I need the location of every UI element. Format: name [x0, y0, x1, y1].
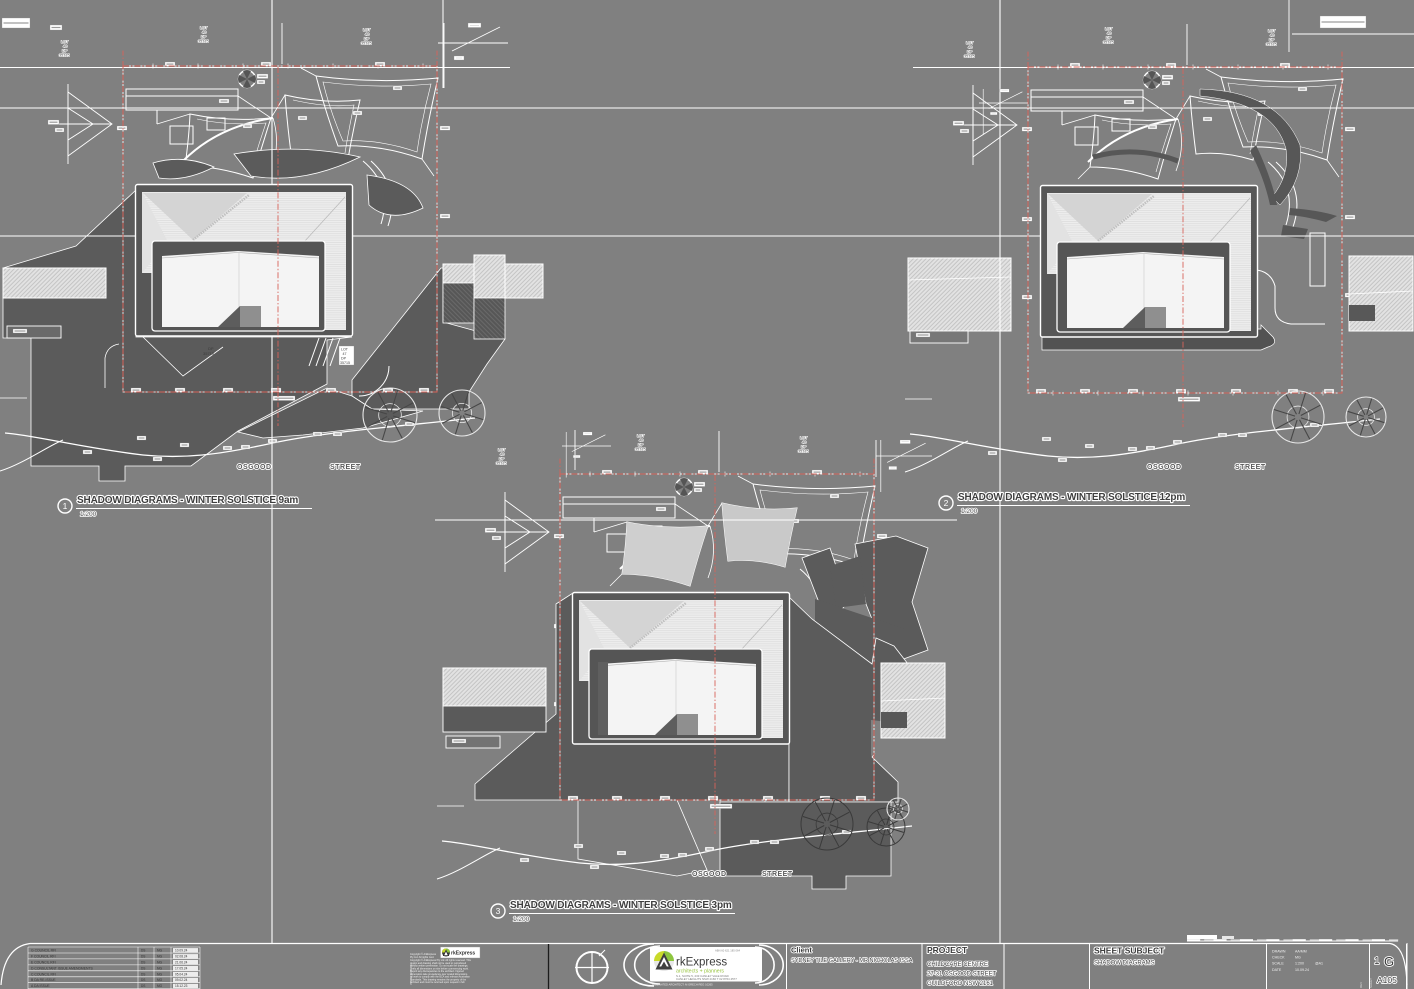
svg-text:SHADOW DIAGRAMS - WINTER SOLST: SHADOW DIAGRAMS - WINTER SOLSTICE 12pm — [958, 492, 1185, 503]
svg-text:A105: A105 — [1377, 975, 1397, 985]
svg-text:1: 1 — [63, 501, 68, 511]
svg-text:STREET: STREET — [1235, 464, 1266, 471]
svg-text:10.09.24: 10.09.24 — [175, 949, 188, 953]
svg-text:SHADOW DIAGRAMS - WINTER SOLST: SHADOW DIAGRAMS - WINTER SOLSTICE 3pm — [510, 900, 732, 911]
svg-text:B DA RE-ISSUE: B DA RE-ISSUE — [31, 978, 56, 982]
svg-text:MG: MG — [157, 960, 163, 964]
svg-text:DS: DS — [141, 972, 145, 976]
svg-text:DS: DS — [141, 966, 145, 970]
svg-text:09.02.24: 09.02.24 — [175, 978, 188, 982]
svg-text:D CONSULTANT ISSUE AMENDMENTS: D CONSULTANT ISSUE AMENDMENTS — [31, 966, 94, 970]
svg-text:SHADOW DIAGRAMS: SHADOW DIAGRAMS — [1094, 961, 1155, 967]
svg-text:17.05.24: 17.05.24 — [175, 966, 188, 970]
svg-text:1:200: 1:200 — [80, 511, 97, 518]
svg-text:REV: REV — [1359, 982, 1363, 988]
svg-text:G COUNCIL RFI: G COUNCIL RFI — [31, 949, 56, 953]
svg-text:15.12.23: 15.12.23 — [175, 984, 188, 988]
svg-text:OSGOOD: OSGOOD — [692, 871, 727, 878]
svg-text:C COUNCIL RFI: C COUNCIL RFI — [31, 972, 56, 976]
svg-text:architect and must be returned: architect and must be returned upon requ… — [410, 981, 465, 984]
svg-text:A DA ISSUE: A DA ISSUE — [31, 984, 50, 988]
svg-text:DP: DP — [341, 357, 347, 361]
svg-text:DATE: DATE — [1272, 968, 1282, 972]
svg-text:NOMINATED ARCHITECT: M GRECH R: NOMINATED ARCHITECT: M GRECH REG 10265 — [652, 983, 713, 987]
svg-text:SHEET: SHEET — [1369, 978, 1373, 988]
svg-text:DS: DS — [141, 949, 145, 953]
svg-text:G: G — [1384, 954, 1394, 969]
svg-text:OSGOOD: OSGOOD — [1147, 464, 1182, 471]
svg-text:SHADOW DIAGRAMS - WINTER SOLST: SHADOW DIAGRAMS - WINTER SOLSTICE 9am — [77, 495, 298, 506]
svg-text:CANLEY HEIGHTS NSW 2166 T 02: CANLEY HEIGHTS NSW 2166 T 02 8764 4577 — [676, 977, 737, 981]
svg-text:E COUNCIL RFI: E COUNCIL RFI — [31, 960, 56, 964]
svg-text:MG: MG — [157, 966, 163, 970]
svg-text:SHEET SUBJECT: SHEET SUBJECT — [1094, 946, 1165, 956]
svg-text:SYDNEY TILE GALLERY - MR NICHO: SYDNEY TILE GALLERY - MR NICHOLAS ISSA — [791, 958, 913, 964]
svg-text:3: 3 — [496, 906, 501, 916]
svg-text:MG: MG — [157, 984, 163, 988]
svg-text:CHILDCARE CENTRE: CHILDCARE CENTRE — [927, 962, 988, 968]
svg-text:ABN 60 621 185 064: ABN 60 621 185 064 — [715, 949, 740, 953]
svg-text:35715: 35715 — [203, 351, 215, 356]
svg-text:47: 47 — [343, 352, 347, 356]
svg-text:MG: MG — [157, 978, 163, 982]
svg-text:F COUNCIL RFI: F COUNCIL RFI — [31, 955, 56, 959]
svg-text:05.04.24: 05.04.24 — [175, 972, 188, 976]
svg-text:MG: MG — [1295, 956, 1301, 960]
svg-text:1:200: 1:200 — [513, 916, 530, 923]
svg-text:2: 2 — [944, 498, 949, 508]
svg-text:MG: MG — [157, 949, 163, 953]
svg-text:AA/MM: AA/MM — [1295, 950, 1307, 954]
svg-text:27-31 OSGOOD STREET: 27-31 OSGOOD STREET — [927, 972, 997, 978]
svg-text:CHECK: CHECK — [1272, 956, 1285, 960]
svg-text:DS: DS — [141, 955, 145, 959]
svg-text:GUILDFORD NSW 2161: GUILDFORD NSW 2161 — [927, 981, 994, 987]
svg-text:@A1: @A1 — [1315, 962, 1323, 966]
svg-text:DS: DS — [141, 984, 145, 988]
svg-text:1: 1 — [1374, 956, 1380, 967]
svg-text:SCALE: SCALE — [1272, 962, 1284, 966]
svg-text:STREET: STREET — [762, 871, 793, 878]
svg-text:Client: Client — [791, 946, 812, 955]
svg-text:STREET: STREET — [330, 464, 361, 471]
svg-text:DS: DS — [141, 978, 145, 982]
svg-text:02.08.24: 02.08.24 — [175, 955, 188, 959]
svg-text:rkExpress: rkExpress — [451, 951, 475, 957]
svg-text:DS: DS — [141, 960, 145, 964]
svg-text:1:200: 1:200 — [961, 508, 978, 515]
svg-text:10.09.24: 10.09.24 — [1295, 968, 1309, 972]
svg-text:Pty Ltd. All rights rsvd.: Pty Ltd. All rights rsvd. — [410, 956, 434, 959]
svg-text:MG: MG — [157, 955, 163, 959]
svg-text:PROJECT: PROJECT — [927, 945, 968, 955]
svg-text:35715: 35715 — [340, 361, 350, 365]
svg-text:MG: MG — [157, 972, 163, 976]
svg-text:OSGOOD: OSGOOD — [237, 464, 272, 471]
svg-text:21.06.24: 21.06.24 — [175, 960, 188, 964]
svg-text:1:200: 1:200 — [1295, 962, 1304, 966]
svg-text:rkExpress: rkExpress — [676, 957, 727, 969]
svg-text:LOT: LOT — [341, 348, 349, 352]
svg-text:DRAWN: DRAWN — [1272, 950, 1286, 954]
